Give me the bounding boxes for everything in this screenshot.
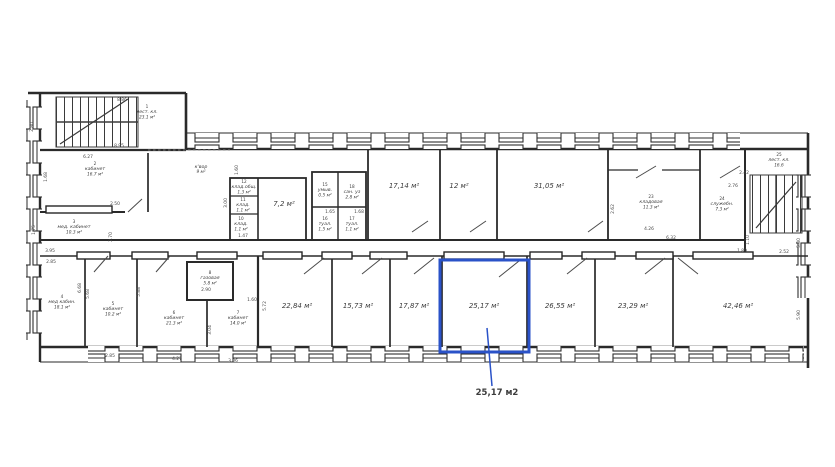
dimension-label: 3.04 [207, 325, 213, 335]
dimension-label: 1.89 [737, 248, 747, 254]
dimension-label: 1.47 [238, 233, 248, 239]
dimension-label: 2.76 [728, 183, 738, 189]
room-label: 25лест. кл.16.6 [767, 152, 790, 168]
dimension-label: 2.50 [110, 201, 120, 207]
room-label: 24служебн.7.3 м² [711, 196, 734, 212]
dimension-label: 6.27 [83, 154, 93, 160]
dimension-label: 2.80 [29, 122, 35, 132]
dimension-label: 2.85 [105, 353, 115, 359]
staircase-left [56, 97, 138, 147]
dimension-label: 5.88 [136, 287, 142, 297]
dimension-label: 1.60 [234, 165, 240, 175]
room-label: 11клад.1.1 м² [236, 197, 250, 213]
dimension-label: 3.06 [228, 358, 238, 364]
dimension-label: 3.00 [223, 198, 229, 208]
room-label: 12 м² [449, 182, 468, 190]
room-label: 15,73 м² [343, 302, 374, 310]
dimension-label: 6.32 [666, 235, 676, 241]
dimension-label: 6.68 [77, 283, 83, 293]
dimension-label: 1.60 [247, 297, 257, 303]
dimension-label: 8.86 [117, 97, 127, 103]
staircase-right [750, 175, 802, 233]
room-label: 26,55 м² [545, 302, 576, 310]
dimension-label: 5.68 [85, 289, 91, 299]
room-label: к'вор9 м² [195, 164, 208, 175]
exterior-walls [26, 93, 811, 368]
room-label: 12клад.общ.1.3 м² [231, 179, 256, 195]
room-label: 23,29 м² [618, 302, 649, 310]
bottom-windows [88, 346, 804, 362]
dimension-label: 2.90 [201, 287, 211, 293]
room-label: 1лест. кл.23.1 м² [135, 104, 158, 120]
top-windows [192, 133, 740, 149]
room-label: 22,84 м² [282, 302, 313, 310]
room-label: 3мед. кабинет10.3 м² [58, 219, 91, 235]
dimension-label: 2.42 [739, 170, 749, 176]
room-label: 8газовая5.8 м² [200, 270, 219, 286]
room-label: 17туал.1.1 м² [345, 216, 358, 232]
room-label: 5кабинет10.2 м² [103, 301, 124, 317]
dimension-label: 5.72 [262, 301, 268, 311]
dimension-label: 2.62 [610, 204, 616, 214]
dimension-label: 2.70 [108, 232, 114, 242]
dimension-label: 1.68 [354, 209, 364, 215]
room-label: 15умыв.0.5 м² [317, 182, 332, 198]
dimension-label: 5.80 [796, 238, 802, 248]
room-label: 7,2 м² [273, 200, 295, 208]
room-label: 18сан. уз2.8 м² [344, 184, 361, 200]
dimension-label: 1.75 [31, 225, 37, 235]
highlight-annotation: 25,17 м2 [440, 260, 529, 398]
room-label: 2кабинет16.7 м² [85, 161, 106, 177]
room-label: 23кладовая11.3 м² [639, 194, 662, 210]
dimension-label: 3.95 [45, 248, 55, 254]
room-label: 31,05 м² [534, 182, 565, 190]
dimension-label: 4.27 [172, 356, 182, 362]
highlighted-room-area-label: 25,17 м2 [476, 388, 519, 398]
room-label: 7кабинет14.0 м² [228, 310, 249, 326]
dimension-label: 5.90 [796, 310, 802, 320]
room-label: 42,46 м² [723, 302, 754, 310]
dimension-label: 1.68 [43, 172, 49, 182]
dimension-label: 8.95 [114, 143, 124, 149]
dimension-label: 2.52 [779, 249, 789, 255]
room-label: 4мед кабин.18.1 м² [48, 294, 75, 310]
dimension-label: 1.65 [325, 209, 335, 215]
dimension-label: 1.10 [745, 235, 751, 245]
room-label: 6кабинет21.3 м² [164, 310, 185, 326]
room-label: 25,17 м² [469, 302, 500, 310]
interior-walls [40, 149, 808, 347]
room-label: 17,87 м² [399, 302, 430, 310]
floor-plan-drawing: 1лест. кл.23.1 м²2кабинет16.7 м²3мед. ка… [0, 0, 835, 467]
room-label: 17,14 м² [389, 182, 420, 190]
left-windows [26, 100, 42, 336]
room-label: 16туал.1.5 м² [318, 216, 331, 232]
dimension-label: 2.85 [46, 259, 56, 265]
room-label: 10клад.1.1 м² [234, 216, 248, 232]
floor-plan-page: 1лест. кл.23.1 м²2кабинет16.7 м²3мед. ка… [0, 0, 835, 467]
dimension-label: 4.26 [644, 226, 654, 232]
